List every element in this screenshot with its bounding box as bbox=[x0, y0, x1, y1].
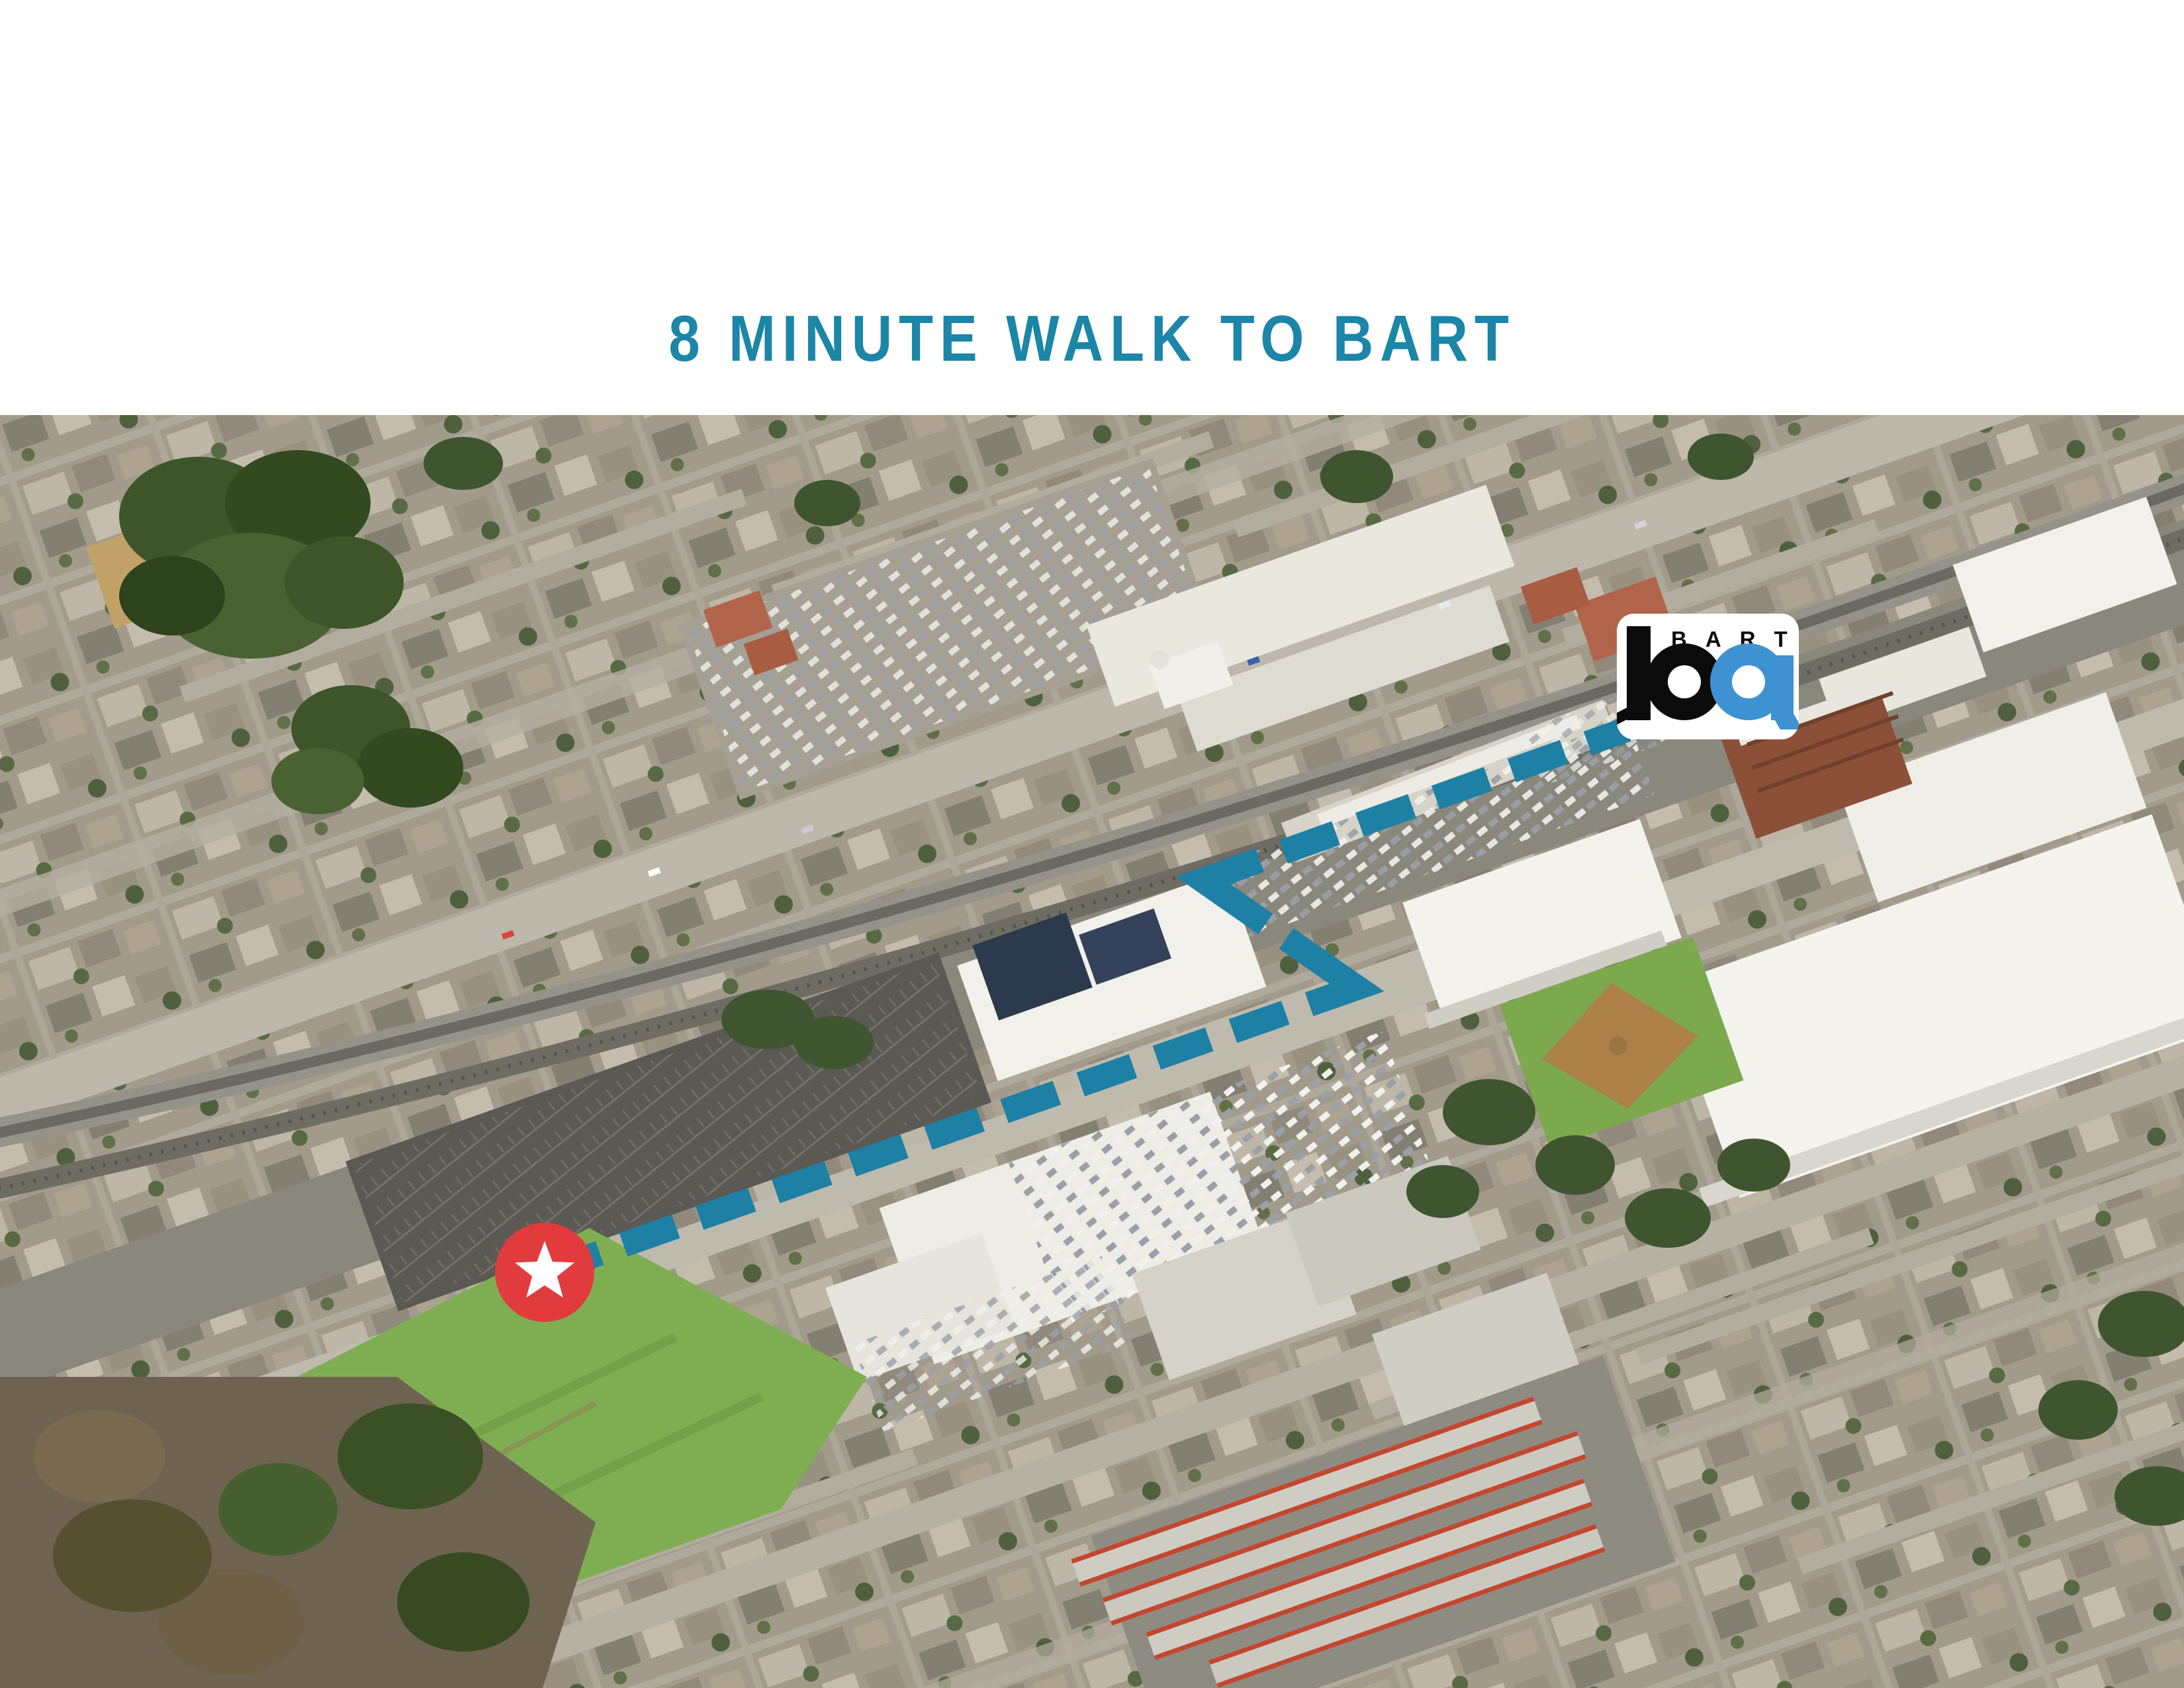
aerial-photo: BART bbox=[0, 415, 2184, 1688]
bart-logo-badge: BART bbox=[1614, 614, 1806, 739]
page-title: 8 MINUTE WALK TO BART bbox=[142, 306, 2042, 371]
flyer-page: 8 MINUTE WALK TO BART bbox=[0, 0, 2184, 1688]
star-marker bbox=[495, 1223, 594, 1322]
